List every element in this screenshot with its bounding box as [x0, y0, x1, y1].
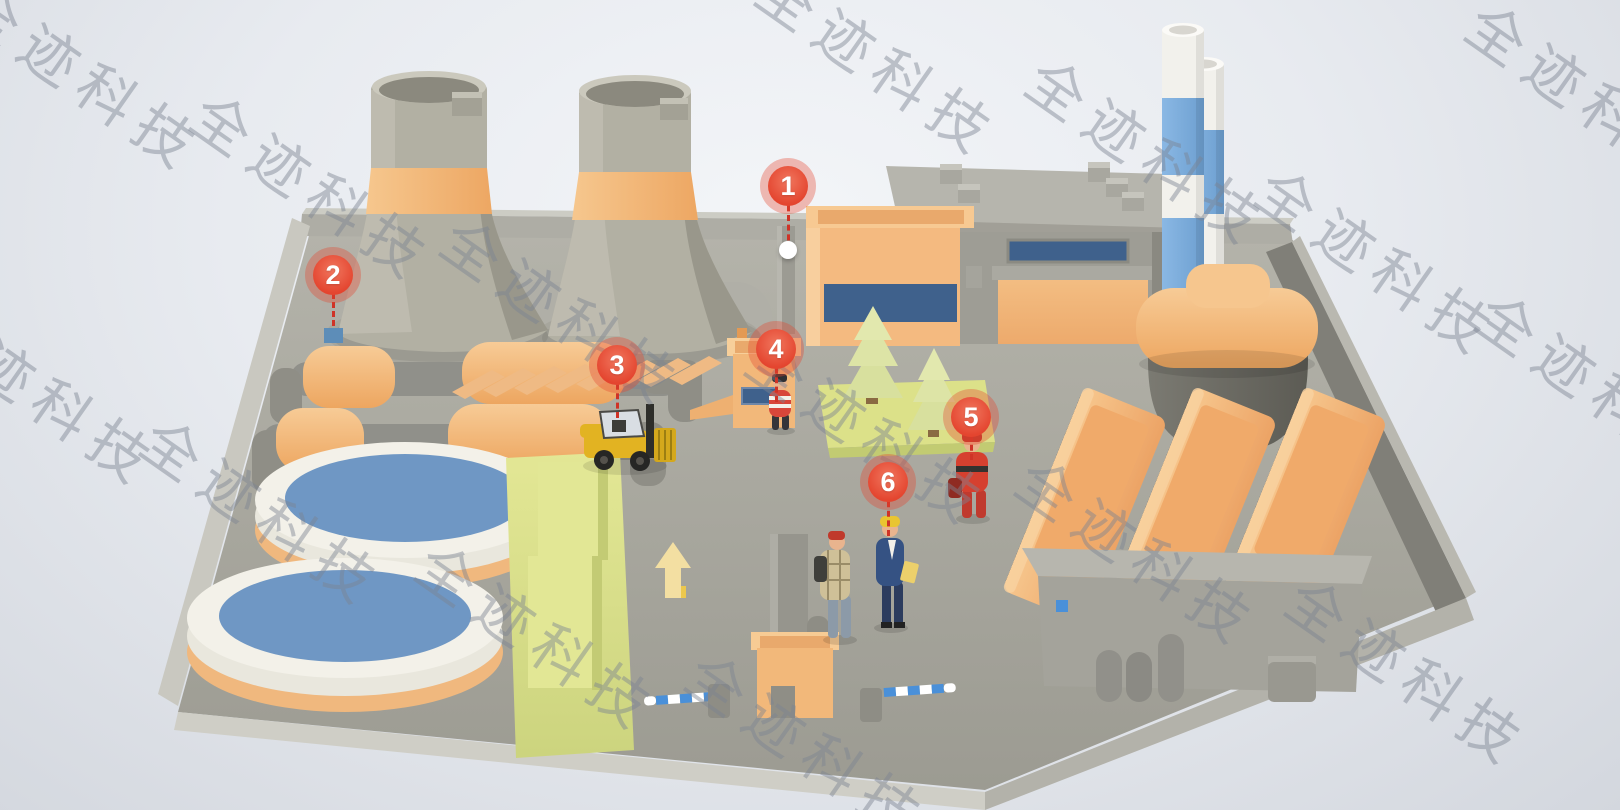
- marker-anchor-square: [324, 328, 343, 343]
- marker-bubble: 5: [951, 397, 991, 437]
- marker-number: 5: [963, 402, 978, 433]
- marker-bubble: 4: [756, 329, 796, 369]
- marker-bubble: 3: [597, 345, 637, 385]
- marker-anchor-dot: [779, 241, 797, 259]
- marker-number: 6: [880, 467, 895, 498]
- marker-bubble: 2: [313, 255, 353, 295]
- marker-bubble: 6: [868, 462, 908, 502]
- marker-layer: 123456: [0, 0, 1620, 810]
- marker-number: 1: [780, 171, 795, 202]
- marker-number: 4: [768, 334, 783, 365]
- marker-bubble: 1: [768, 166, 808, 206]
- marker-number: 2: [325, 260, 340, 291]
- plant-site-map: 全迹科技全迹科技全迹科技全迹科技全迹科技全迹科技全迹科技全迹科技全迹科技全迹科技…: [0, 0, 1620, 810]
- marker-number: 3: [609, 350, 624, 381]
